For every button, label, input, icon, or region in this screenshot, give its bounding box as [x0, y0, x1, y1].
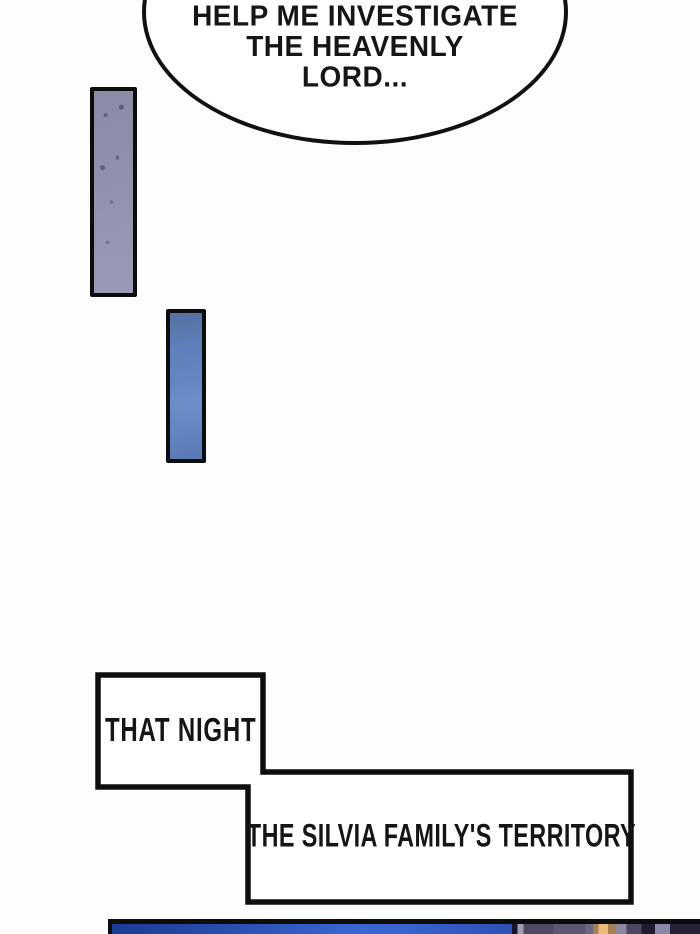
night-sky-gradient [112, 924, 512, 934]
caption-territory: THE SILVIA FAMILY'S TERRITORY [251, 775, 631, 899]
panel-night-city [108, 919, 700, 934]
caption-that-night: THAT NIGHT [98, 678, 263, 784]
city-buildings-strip [512, 924, 700, 934]
caption-territory-label: THE SILVIA FAMILY'S TERRITORY [246, 819, 635, 856]
caption-that-night-label: THAT NIGHT [105, 712, 257, 749]
comic-page: HELP ME INVESTIGATE THE HEAVENLY LORD...… [0, 0, 700, 934]
